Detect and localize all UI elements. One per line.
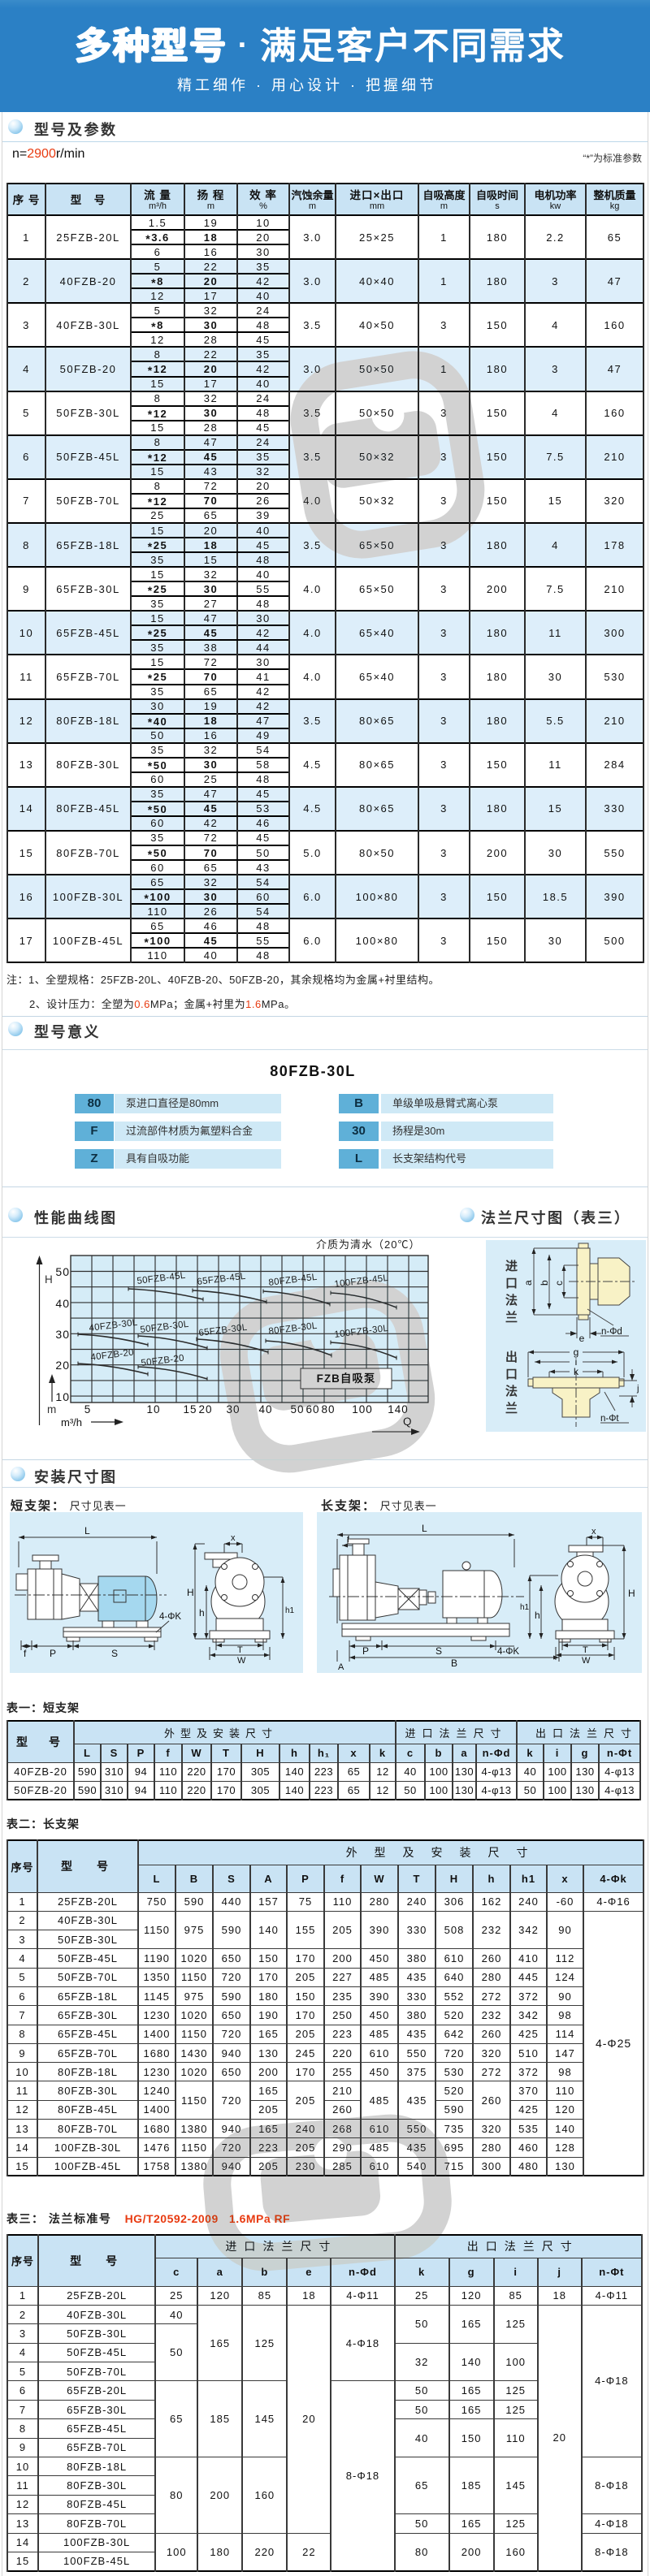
svg-text:10: 10 xyxy=(55,1390,70,1403)
svg-text:50: 50 xyxy=(55,1265,70,1278)
svg-text:n-Φd: n-Φd xyxy=(601,1327,622,1337)
svg-text:H: H xyxy=(45,1273,53,1286)
svg-text:40: 40 xyxy=(55,1297,70,1310)
svg-text:c: c xyxy=(553,1281,565,1286)
svg-text:P: P xyxy=(50,1648,56,1659)
svg-text:口: 口 xyxy=(505,1368,518,1381)
svg-text:进: 进 xyxy=(505,1260,518,1273)
svg-text:S: S xyxy=(435,1645,442,1657)
svg-text:W: W xyxy=(582,1656,591,1666)
svg-text:兰: 兰 xyxy=(505,1401,518,1416)
svg-text:口: 口 xyxy=(505,1277,518,1290)
svg-text:B: B xyxy=(451,1658,457,1669)
svg-text:h1: h1 xyxy=(520,1603,530,1612)
svg-text:P: P xyxy=(362,1645,369,1657)
svg-text:20: 20 xyxy=(55,1359,70,1372)
svg-text:x: x xyxy=(591,1527,596,1537)
svg-text:e: e xyxy=(579,1333,585,1344)
svg-text:m³/h: m³/h xyxy=(61,1416,82,1428)
svg-text:a: a xyxy=(522,1280,534,1286)
svg-text:4-ΦK: 4-ΦK xyxy=(497,1647,519,1657)
svg-text:b: b xyxy=(539,1280,550,1286)
svg-text:h: h xyxy=(535,1610,540,1621)
svg-text:4-ΦK: 4-ΦK xyxy=(159,1612,181,1622)
svg-text:5: 5 xyxy=(84,1403,92,1416)
svg-text:S: S xyxy=(111,1648,118,1659)
svg-text:m: m xyxy=(47,1403,56,1416)
svg-text:法: 法 xyxy=(505,1384,518,1398)
svg-text:兰: 兰 xyxy=(505,1310,518,1325)
svg-text:f: f xyxy=(24,1648,27,1659)
svg-text:H: H xyxy=(628,1588,635,1599)
svg-text:h1: h1 xyxy=(285,1606,295,1615)
svg-text:j: j xyxy=(636,1384,639,1394)
svg-text:A: A xyxy=(338,1662,344,1672)
svg-text:n-Φt: n-Φt xyxy=(600,1414,619,1424)
svg-text:出: 出 xyxy=(505,1350,518,1364)
svg-text:30: 30 xyxy=(55,1328,70,1341)
svg-text:法: 法 xyxy=(505,1293,518,1307)
svg-text:H: H xyxy=(187,1587,194,1598)
svg-text:k: k xyxy=(574,1366,579,1377)
svg-text:T: T xyxy=(237,1645,243,1655)
svg-text:L: L xyxy=(84,1525,90,1537)
svg-text:T: T xyxy=(583,1645,588,1655)
svg-text:h: h xyxy=(199,1607,205,1619)
svg-text:W: W xyxy=(237,1656,246,1666)
